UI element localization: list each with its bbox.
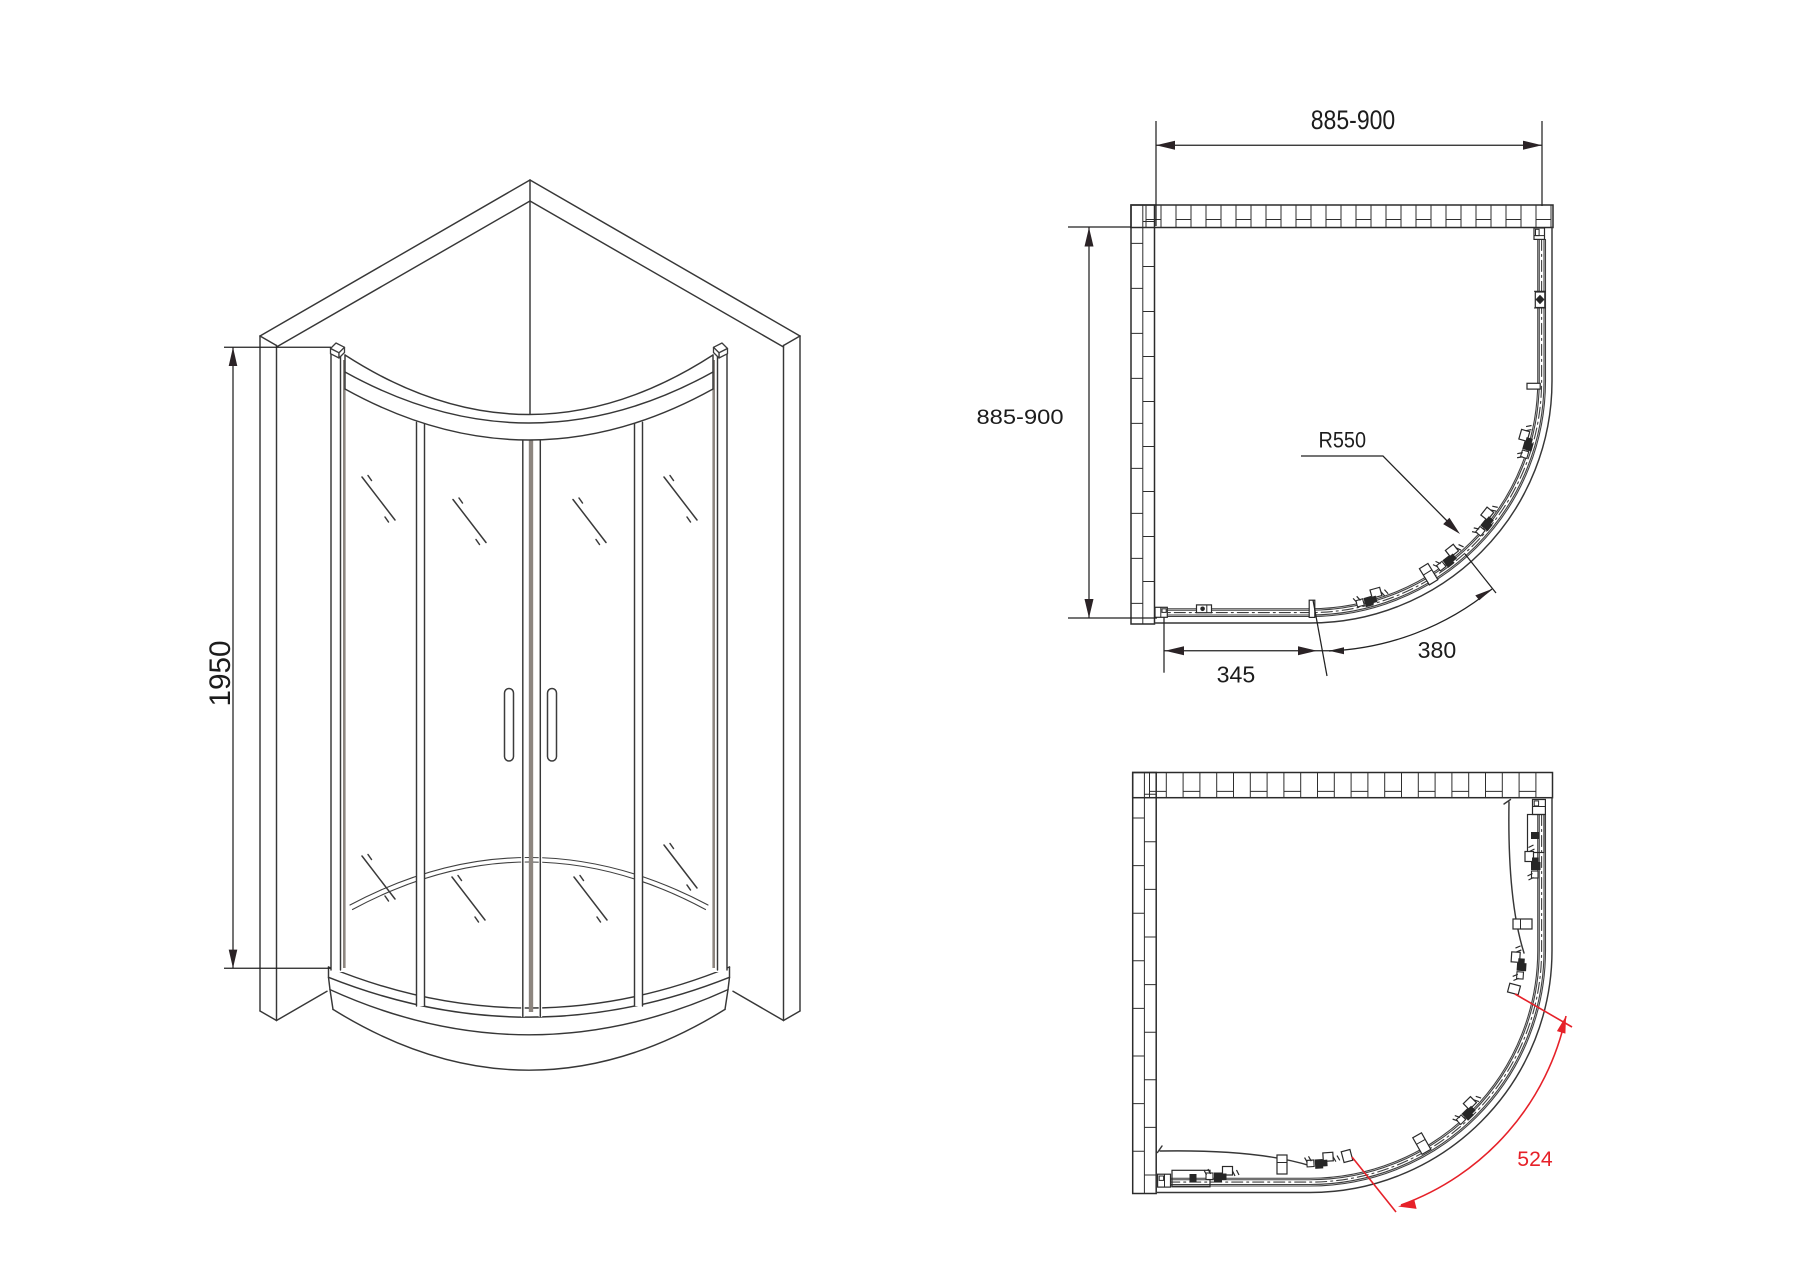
svg-text:1950: 1950: [204, 641, 237, 707]
svg-text:885-900: 885-900: [1311, 105, 1396, 135]
svg-text:345: 345: [1217, 662, 1256, 688]
svg-text:R550: R550: [1319, 428, 1367, 453]
svg-text:380: 380: [1418, 637, 1457, 663]
svg-text:885-900: 885-900: [977, 405, 1064, 429]
svg-text:524: 524: [1517, 1148, 1553, 1171]
